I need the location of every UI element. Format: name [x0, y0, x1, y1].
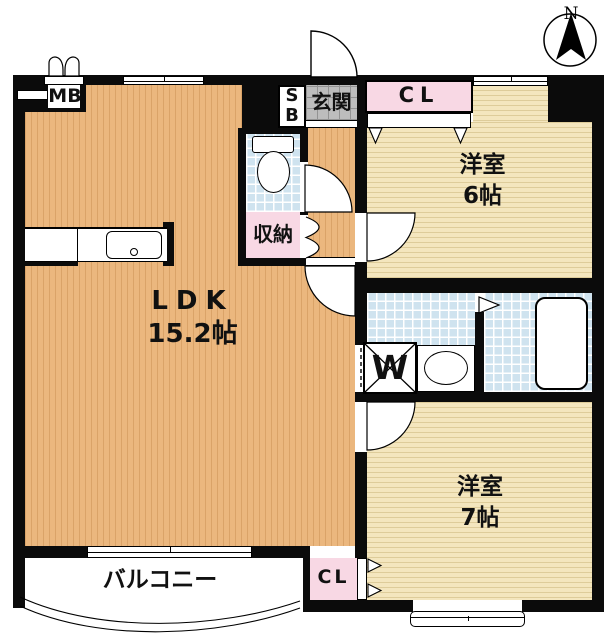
room6-window-alcove [473, 85, 548, 122]
meter-box-label: MB [48, 86, 82, 107]
compass-circle [544, 14, 596, 66]
room6-door-gap[interactable] [357, 213, 367, 262]
wall-hall-room6-upper [355, 122, 367, 213]
window-ldk-balcony[interactable] [87, 546, 252, 558]
ldk-name: LDK [110, 285, 275, 318]
hall-ldk-door-gap[interactable] [306, 257, 355, 266]
storage-label: 収納 [246, 223, 300, 245]
compass-needle [556, 13, 586, 60]
balcony-rail-inner [20, 597, 300, 623]
window-tick [511, 77, 512, 81]
window-tick [170, 547, 171, 553]
closet-upper-sliding-door[interactable] [367, 113, 471, 128]
wall-right [592, 75, 604, 612]
wash-basin [424, 351, 468, 385]
window-top-room6[interactable] [473, 76, 548, 86]
compass-rose: N [544, 4, 596, 66]
toilet-door-gap[interactable] [300, 162, 308, 212]
bathtub [535, 297, 588, 390]
wall-bath-divider [475, 312, 484, 392]
entrance-door-arc [311, 31, 357, 77]
toilet-bowl [257, 151, 290, 193]
floor-plan: N MB S B 玄関 CL 収納 W 洋室 6帖 LDK 15.2帖 洋室 7… [0, 0, 616, 640]
kitchen-sink [106, 231, 162, 259]
wall-left [13, 75, 25, 608]
compass-north-label: N [564, 4, 579, 24]
room7-name: 洋室 [420, 472, 540, 503]
closet-upper-label: CL [365, 84, 473, 108]
window-tick [164, 77, 165, 81]
shoe-box-label: S B [280, 86, 304, 126]
wall-topright-block [548, 75, 592, 122]
wall-room7-left [355, 452, 367, 558]
washer-label: W [363, 350, 417, 387]
room6-label: 洋室 6帖 [425, 150, 540, 212]
meter-box-sill [44, 76, 84, 85]
ldk-size: 15.2帖 [110, 318, 275, 351]
shoe-box-b: B [285, 105, 299, 126]
shoe-box-s: S [286, 85, 299, 106]
balcony-label: バルコニー [65, 568, 255, 594]
window-room7-frame [410, 611, 525, 627]
entrance-step [306, 120, 357, 128]
window-top-ldk[interactable] [123, 76, 204, 85]
meterbox-door-left [49, 57, 63, 76]
wall-balcony-closet [303, 550, 310, 612]
closet-lower-sliding-door[interactable] [357, 558, 367, 600]
room7-door-gap[interactable] [357, 402, 367, 452]
room7-label: 洋室 7帖 [420, 472, 540, 534]
entrance-label: 玄関 [306, 91, 357, 113]
storage-door-gap[interactable] [300, 215, 308, 258]
bathroom-door-gap[interactable] [475, 293, 484, 312]
window-tick [468, 616, 469, 622]
wall-washroom-left [355, 293, 367, 345]
room6-size: 6帖 [425, 181, 540, 212]
meterbox-door-right [65, 57, 79, 76]
room6-name: 洋室 [425, 150, 540, 181]
meter-box-slot [17, 90, 48, 100]
counter-divider [77, 229, 78, 261]
ldk-label: LDK 15.2帖 [110, 285, 275, 350]
wall-shoebox-column [242, 75, 278, 132]
closet-lower-label: CL [310, 567, 357, 588]
sink-drain [130, 248, 138, 256]
wall-washblock-top [355, 278, 592, 293]
room7-size: 7帖 [420, 503, 540, 534]
balcony-rail-outer [20, 606, 300, 632]
